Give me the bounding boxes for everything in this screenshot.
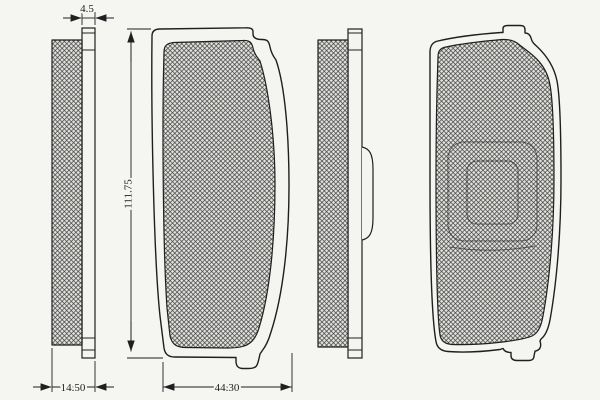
pad-back-view (430, 26, 561, 361)
side-view-left (52, 28, 95, 358)
friction-material-face (163, 40, 275, 348)
friction-material-edge (52, 40, 82, 345)
backing-plate-edge (82, 28, 95, 358)
backing-plate-edge (348, 29, 362, 358)
brake-pad-technical-drawing: 4.5 14.50 111.75 44.30 (0, 0, 600, 400)
dim-plate-thickness-label: 4.5 (80, 3, 94, 15)
plate-bump-profile (362, 147, 373, 240)
pad-front-view (152, 28, 289, 369)
dim-total-thickness-label: 14.50 (61, 382, 86, 394)
drawing-canvas: 4.5 14.50 111.75 44.30 (0, 0, 600, 400)
dimension-pad-width: 44.30 (163, 353, 292, 394)
side-view-middle (318, 29, 373, 358)
dim-pad-width-label: 44.30 (215, 382, 240, 394)
dimension-plate-thickness: 4.5 (63, 3, 114, 25)
dim-pad-length-label: 111.75 (123, 179, 135, 209)
plate-back-face (436, 39, 554, 344)
friction-material-edge (318, 40, 348, 347)
dimension-total-thickness: 14.50 (33, 348, 114, 394)
